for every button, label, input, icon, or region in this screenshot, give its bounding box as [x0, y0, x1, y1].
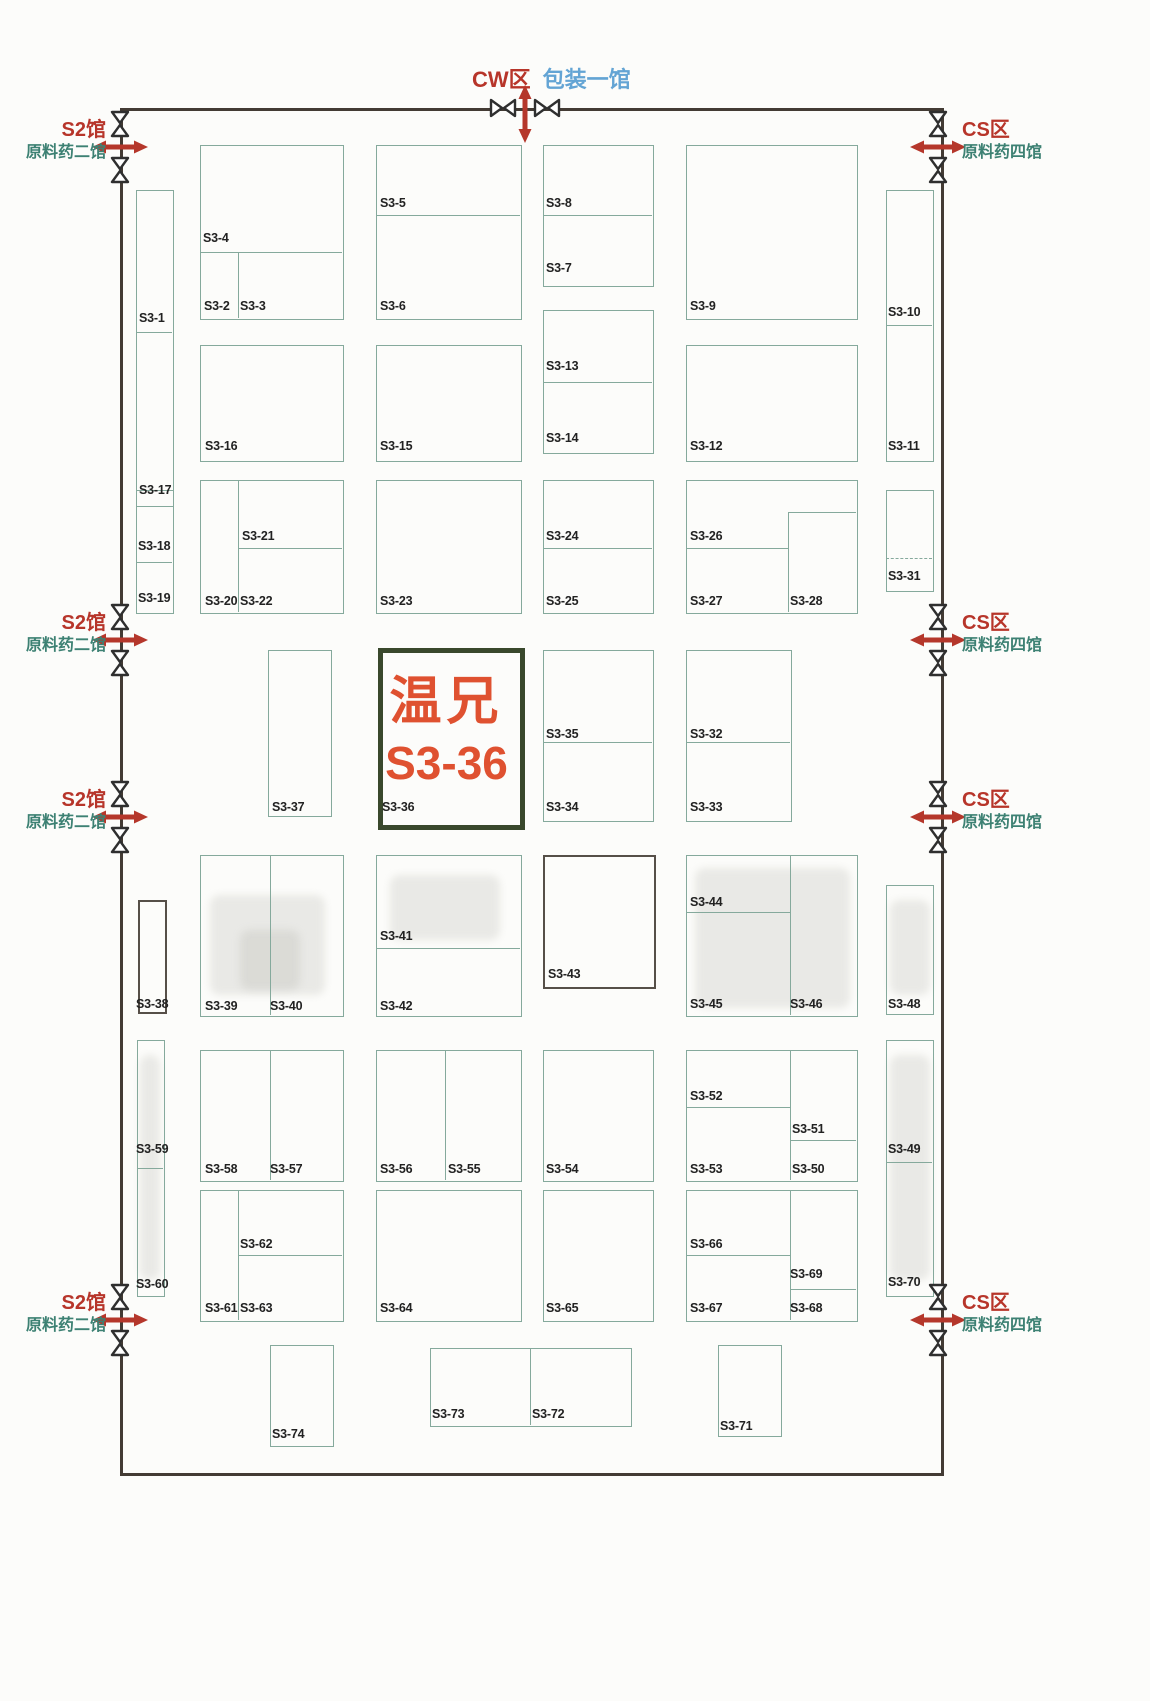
booth-label-s3-59: S3-59 [136, 1143, 168, 1156]
booth-divider [376, 215, 520, 216]
door-icon [927, 780, 949, 808]
right-entrance-hall: 原料药四馆 [962, 637, 1042, 654]
door-icon [927, 110, 949, 138]
booth-label-s3-2: S3-2 [204, 300, 230, 313]
booth-box [686, 855, 858, 1017]
door-icon [489, 97, 517, 119]
door-icon [109, 1283, 131, 1311]
booth-divider [136, 562, 172, 563]
entrance-arrow-icon [910, 1312, 966, 1328]
booth-divider [790, 1140, 856, 1141]
left-entrance-zone: S2馆 [62, 612, 106, 634]
booth-label-s3-57: S3-57 [270, 1163, 302, 1176]
door-icon [109, 780, 131, 808]
booth-divider [788, 512, 789, 612]
door-icon [927, 826, 949, 854]
booth-label-s3-55: S3-55 [448, 1163, 480, 1176]
booth-label-s3-43: S3-43 [548, 968, 580, 981]
booth-label-s3-62: S3-62 [240, 1238, 272, 1251]
booth-label-s3-13: S3-13 [546, 360, 578, 373]
booth-label-s3-53: S3-53 [690, 1163, 722, 1176]
booth-label-s3-24: S3-24 [546, 530, 578, 543]
door-icon [109, 826, 131, 854]
left-entrance-hall: 原料药二馆 [26, 1317, 106, 1334]
booth-label-s3-6: S3-6 [380, 300, 406, 313]
booth-divider [788, 512, 856, 513]
right-entrance-label: CS区原料药四馆 [962, 1291, 1042, 1336]
booth-label-s3-8: S3-8 [546, 197, 572, 210]
top-entrance-hall: 包装一馆 [543, 62, 631, 94]
right-entrance-label: CS区原料药四馆 [962, 611, 1042, 656]
booth-label-s3-41: S3-41 [380, 930, 412, 943]
booth-label-s3-45: S3-45 [690, 998, 722, 1011]
left-entrance-hall: 原料药二馆 [26, 637, 106, 654]
booth-label-s3-71: S3-71 [720, 1420, 752, 1433]
booth-box [376, 145, 522, 320]
booth-divider [790, 1289, 856, 1290]
highlight-company-name: 温兄 [378, 676, 515, 728]
booth-label-s3-42: S3-42 [380, 1000, 412, 1013]
booth-label-s3-11: S3-11 [888, 440, 920, 453]
door-icon [927, 649, 949, 677]
booth-box [268, 650, 332, 817]
top-entrance-zone: CW区 [472, 62, 531, 94]
booth-box [686, 145, 858, 320]
booth-divider [137, 1168, 163, 1169]
right-entrance-zone: CS区 [962, 1292, 1010, 1314]
door-icon [533, 97, 561, 119]
booth-box [136, 190, 174, 507]
booth-divider [886, 558, 932, 559]
left-entrance-hall: 原料药二馆 [26, 814, 106, 831]
booth-label-s3-26: S3-26 [690, 530, 722, 543]
right-entrance-hall: 原料药四馆 [962, 814, 1042, 831]
right-entrance-zone: CS区 [962, 789, 1010, 811]
booth-label-s3-31: S3-31 [888, 570, 920, 583]
booth-divider [238, 1255, 342, 1256]
booth-divider [790, 855, 791, 1015]
booth-label-s3-56: S3-56 [380, 1163, 412, 1176]
booth-label-s3-25: S3-25 [546, 595, 578, 608]
booth-divider [530, 1348, 531, 1425]
booth-label-s3-4: S3-4 [203, 232, 229, 245]
booth-divider [376, 948, 520, 949]
booth-label-s3-23: S3-23 [380, 595, 412, 608]
right-entrance-hall: 原料药四馆 [962, 1317, 1042, 1334]
booth-label-s3-50: S3-50 [792, 1163, 824, 1176]
booth-divider [200, 252, 342, 253]
booth-label-s3-33: S3-33 [690, 801, 722, 814]
left-entrance-zone: S2馆 [62, 789, 106, 811]
left-entrance-label: S2馆原料药二馆 [26, 788, 106, 833]
booth-divider [543, 215, 652, 216]
door-icon [109, 603, 131, 631]
right-entrance-hall: 原料药四馆 [962, 144, 1042, 161]
left-entrance-label: S2馆原料药二馆 [26, 611, 106, 656]
booth-divider [238, 480, 239, 612]
booth-box [886, 1040, 934, 1297]
booth-label-s3-69: S3-69 [790, 1268, 822, 1281]
booth-label-s3-7: S3-7 [546, 262, 572, 275]
booth-label-s3-34: S3-34 [546, 801, 578, 814]
booth-divider [686, 548, 788, 549]
booth-box [886, 885, 934, 1015]
booth-label-s3-51: S3-51 [792, 1123, 824, 1136]
left-entrance-zone: S2馆 [62, 119, 106, 141]
door-icon [927, 1283, 949, 1311]
booth-box [886, 190, 934, 462]
booth-label-s3-64: S3-64 [380, 1302, 412, 1315]
booth-label-s3-58: S3-58 [205, 1163, 237, 1176]
booth-label-s3-14: S3-14 [546, 432, 578, 445]
booth-box [200, 855, 344, 1017]
booth-divider [543, 382, 652, 383]
left-entrance-hall: 原料药二馆 [26, 144, 106, 161]
booth-label-s3-49: S3-49 [888, 1143, 920, 1156]
booth-label-s3-27: S3-27 [690, 595, 722, 608]
right-entrance-zone: CS区 [962, 119, 1010, 141]
booth-label-s3-74: S3-74 [272, 1428, 304, 1441]
booth-label-s3-52: S3-52 [690, 1090, 722, 1103]
booth-label-s3-5: S3-5 [380, 197, 406, 210]
booth-label-s3-20: S3-20 [205, 595, 237, 608]
booth-label-s3-35: S3-35 [546, 728, 578, 741]
booth-divider [270, 855, 271, 1015]
booth-divider [686, 1255, 790, 1256]
top-entrance-label: CW区 包装一馆 [472, 62, 631, 94]
booth-divider [886, 1162, 932, 1163]
booth-label-s3-66: S3-66 [690, 1238, 722, 1251]
entrance-arrow-icon [910, 139, 966, 155]
door-icon [927, 156, 949, 184]
booth-divider [445, 1050, 446, 1180]
booth-label-s3-72: S3-72 [532, 1408, 564, 1421]
booth-label-s3-18: S3-18 [138, 540, 170, 553]
booth-divider [790, 1050, 791, 1180]
left-entrance-zone: S2馆 [62, 1292, 106, 1314]
booth-label-s3-37: S3-37 [272, 801, 304, 814]
booth-divider [686, 912, 790, 913]
booth-label-s3-70: S3-70 [888, 1276, 920, 1289]
booth-label-s3-68: S3-68 [790, 1302, 822, 1315]
booth-label-s3-28: S3-28 [790, 595, 822, 608]
booth-label-s3-36: S3-36 [382, 801, 414, 814]
booth-label-s3-22: S3-22 [240, 595, 272, 608]
entrance-arrow-icon [910, 809, 966, 825]
floor-plan: S3-1S3-17S3-18S3-19S3-4S3-2S3-3S3-5S3-6S… [0, 0, 1150, 1701]
door-icon [109, 110, 131, 138]
door-icon [109, 156, 131, 184]
highlight-booth-number: S3-36 [378, 740, 515, 786]
booth-label-s3-73: S3-73 [432, 1408, 464, 1421]
door-icon [109, 649, 131, 677]
booth-divider [238, 548, 342, 549]
booth-label-s3-67: S3-67 [690, 1302, 722, 1315]
booth-divider [270, 1050, 271, 1180]
right-entrance-label: CS区原料药四馆 [962, 118, 1042, 163]
booth-label-s3-17: S3-17 [139, 484, 171, 497]
booth-label-s3-48: S3-48 [888, 998, 920, 1011]
booth-label-s3-9: S3-9 [690, 300, 716, 313]
booth-label-s3-1: S3-1 [139, 312, 165, 325]
door-icon [109, 1329, 131, 1357]
booth-label-s3-38: S3-38 [136, 998, 168, 1011]
right-entrance-label: CS区原料药四馆 [962, 788, 1042, 833]
booth-divider [238, 252, 239, 318]
booth-label-s3-19: S3-19 [138, 592, 170, 605]
booth-label-s3-61: S3-61 [205, 1302, 237, 1315]
right-entrance-zone: CS区 [962, 612, 1010, 634]
booth-label-s3-46: S3-46 [790, 998, 822, 1011]
booth-divider [543, 548, 652, 549]
entrance-arrow-icon [910, 632, 966, 648]
booth-label-s3-16: S3-16 [205, 440, 237, 453]
left-entrance-label: S2馆原料药二馆 [26, 118, 106, 163]
booth-divider [686, 1107, 790, 1108]
booth-label-s3-21: S3-21 [242, 530, 274, 543]
door-icon [927, 1329, 949, 1357]
booth-divider [136, 332, 172, 333]
booth-label-s3-54: S3-54 [546, 1163, 578, 1176]
left-entrance-label: S2馆原料药二馆 [26, 1291, 106, 1336]
booth-label-s3-3: S3-3 [240, 300, 266, 313]
booth-label-s3-32: S3-32 [690, 728, 722, 741]
booth-divider [686, 742, 790, 743]
booth-label-s3-60: S3-60 [136, 1278, 168, 1291]
door-icon [927, 603, 949, 631]
booth-label-s3-63: S3-63 [240, 1302, 272, 1315]
booth-label-s3-40: S3-40 [270, 1000, 302, 1013]
booth-label-s3-39: S3-39 [205, 1000, 237, 1013]
booth-label-s3-65: S3-65 [546, 1302, 578, 1315]
booth-label-s3-10: S3-10 [888, 306, 920, 319]
booth-label-s3-15: S3-15 [380, 440, 412, 453]
booth-divider [543, 742, 652, 743]
booth-label-s3-12: S3-12 [690, 440, 722, 453]
booth-divider [886, 325, 932, 326]
booth-label-s3-44: S3-44 [690, 896, 722, 909]
